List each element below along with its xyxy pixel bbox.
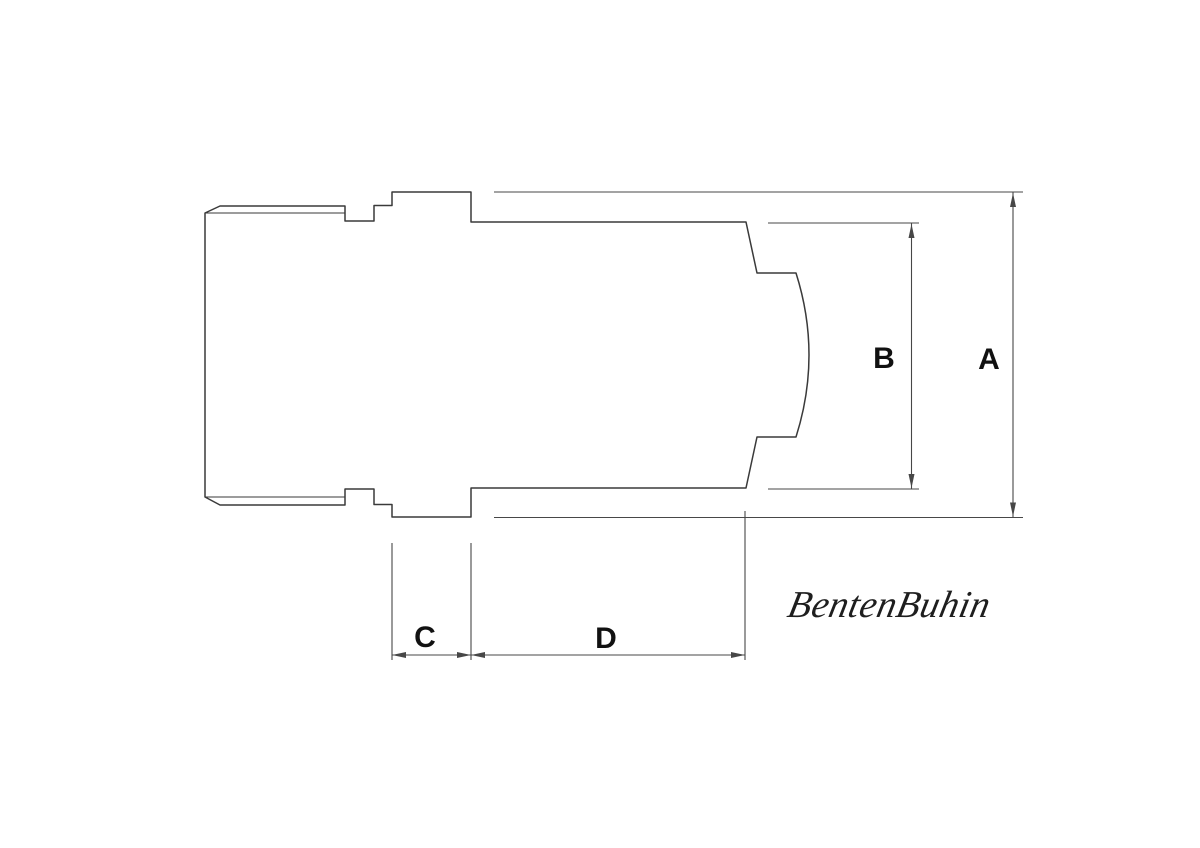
- dimension-label-b: B: [873, 342, 895, 375]
- dimension-label-c: C: [414, 621, 436, 654]
- technical-drawing: A B C D BentenBuhin: [0, 0, 1200, 848]
- brand-signature-text: BentenBuhin: [784, 584, 995, 626]
- dimension-label-d: D: [595, 622, 617, 655]
- drawing-canvas: A B C D BentenBuhin: [0, 0, 1200, 848]
- dimension-label-a: A: [978, 343, 1000, 376]
- drawing-background: [0, 0, 1200, 848]
- brand-signature: BentenBuhin: [784, 584, 995, 626]
